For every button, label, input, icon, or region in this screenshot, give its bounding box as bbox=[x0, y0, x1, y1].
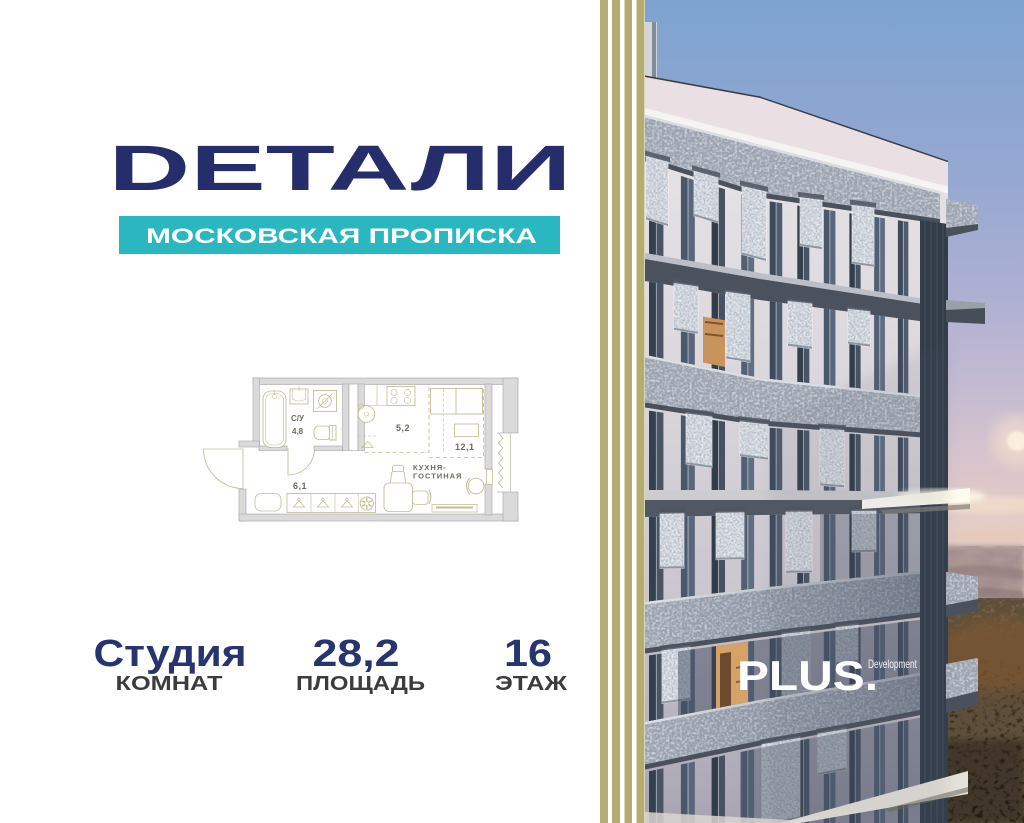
svg-text:ЭТАЖ: ЭТАЖ bbox=[495, 673, 568, 695]
svg-text:6,1: 6,1 bbox=[293, 481, 307, 491]
svg-text:5,2: 5,2 bbox=[396, 423, 410, 433]
svg-text:PLUS.: PLUS. bbox=[737, 652, 878, 699]
svg-text:4,8: 4,8 bbox=[292, 427, 304, 436]
svg-text:16: 16 bbox=[504, 633, 552, 675]
svg-text:ПЛОЩАДЬ: ПЛОЩАДЬ bbox=[296, 673, 425, 695]
svg-text:С/У: С/У bbox=[291, 414, 305, 423]
svg-text:28,2: 28,2 bbox=[313, 633, 400, 675]
svg-text:DЕТАЛИ: DЕТАЛИ bbox=[109, 132, 572, 204]
svg-text:Студия: Студия bbox=[94, 633, 247, 675]
svg-text:ГОСТИНАЯ: ГОСТИНАЯ bbox=[413, 472, 462, 481]
svg-text:МОСКОВСКАЯ ПРОПИСКА: МОСКОВСКАЯ ПРОПИСКА bbox=[146, 225, 537, 248]
svg-text:Development: Development bbox=[868, 657, 917, 671]
svg-text:КОМНАТ: КОМНАТ bbox=[116, 673, 223, 695]
svg-text:12,1: 12,1 bbox=[455, 442, 475, 452]
